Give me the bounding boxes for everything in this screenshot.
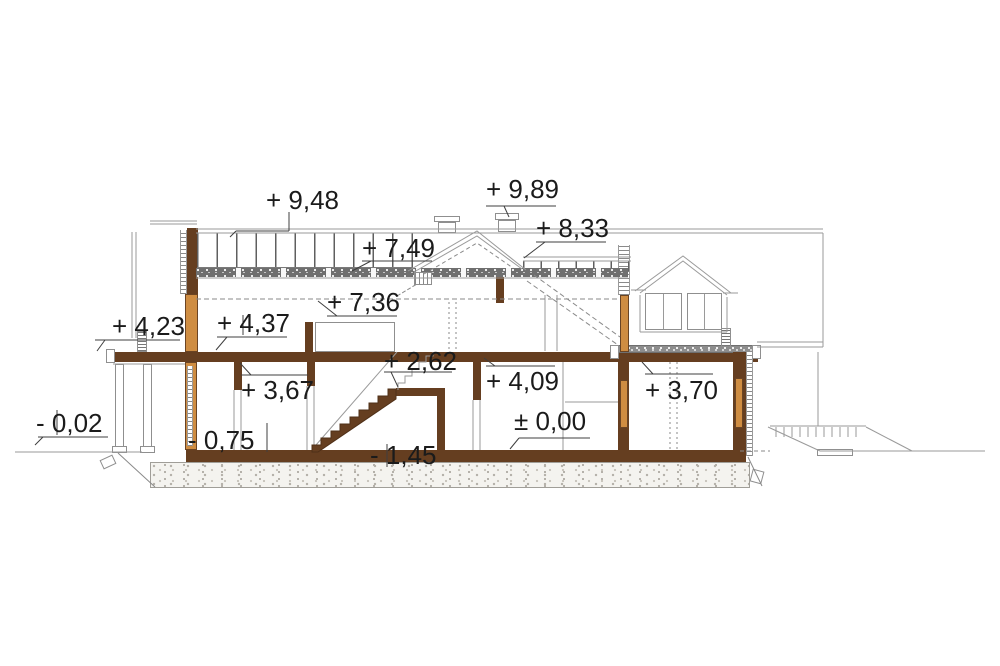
level-label-attic-floor-left: + 4,37 [217, 309, 290, 337]
level-label-ceiling-right: + 4,09 [486, 367, 559, 395]
level-label-roof-left-top: + 9,48 [266, 186, 339, 214]
level-label-porch-roof: + 4,23 [112, 312, 185, 340]
cross-section-drawing: + 9,48 + 9,89 + 8,33 + 7,49 + 7,36 + 4,2… [0, 0, 1000, 666]
level-label-terrace: + 3,70 [645, 376, 718, 404]
level-label-stair-landing: + 2,62 [384, 347, 457, 375]
level-label-attic-ceiling: + 7,36 [327, 288, 400, 316]
level-label-roof-right-top: + 8,33 [536, 214, 609, 242]
level-label-ceiling-left: + 3,67 [241, 376, 314, 404]
level-label-ground-floor: ± 0,00 [514, 407, 586, 435]
level-label-chimney-top: + 9,89 [486, 175, 559, 203]
level-label-foundation: - 1,45 [370, 441, 437, 469]
level-label-exterior-grade: - 0,02 [36, 409, 103, 437]
level-label-sunken-floor: - 0,75 [188, 426, 255, 454]
level-label-roof-underside: + 7,49 [362, 234, 435, 262]
